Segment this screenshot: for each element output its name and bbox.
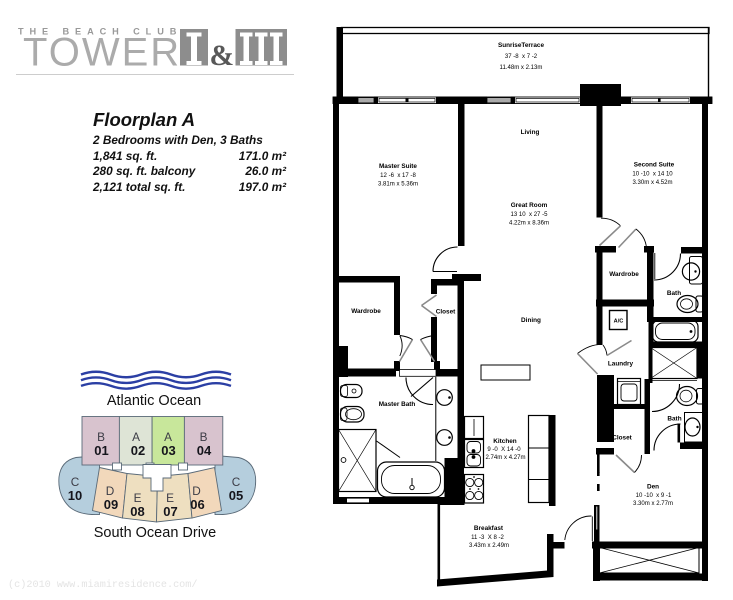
svg-text:Great Room: Great Room (511, 202, 548, 209)
svg-text:SunriseTerrace: SunriseTerrace (498, 42, 545, 49)
svg-text:11.48m x 2.13m: 11.48m x 2.13m (500, 65, 543, 71)
svg-text:Second Suite: Second Suite (634, 162, 675, 169)
svg-text:37 -8 x 7 -2: 37 -8 x 7 -2 (505, 54, 538, 60)
svg-text:Closet: Closet (612, 435, 632, 442)
svg-text:3.30m x 4.52m: 3.30m x 4.52m (633, 180, 673, 186)
svg-text:Kitchen: Kitchen (493, 438, 517, 445)
svg-text:13 10 x 27 -5: 13 10 x 27 -5 (511, 212, 549, 218)
svg-text:Closet: Closet (436, 309, 456, 316)
svg-text:Dining: Dining (521, 317, 541, 324)
svg-text:3.30m x 2.77m: 3.30m x 2.77m (633, 501, 673, 507)
svg-text:2.74m x 4.27m: 2.74m x 4.27m (486, 455, 526, 461)
svg-text:Bath: Bath (667, 290, 681, 297)
svg-text:4.22m x 8.36m: 4.22m x 8.36m (509, 221, 549, 227)
svg-text:10 -10 x 9 -1: 10 -10 x 9 -1 (636, 493, 672, 499)
svg-text:3.81m x 5.36m: 3.81m x 5.36m (378, 182, 418, 188)
svg-text:Bath: Bath (667, 416, 681, 423)
svg-text:Breakfast: Breakfast (474, 525, 504, 532)
svg-text:Laundry: Laundry (608, 361, 634, 368)
svg-text:Wardrobe: Wardrobe (351, 308, 381, 315)
svg-text:Living: Living (521, 129, 540, 136)
svg-text:10 -10 x 14 10: 10 -10 x 14 10 (632, 172, 673, 178)
svg-text:3.43m x 2.49m: 3.43m x 2.49m (469, 543, 509, 549)
svg-text:9 -0 X 14 -0: 9 -0 X 14 -0 (487, 447, 521, 453)
svg-text:A/C: A/C (614, 319, 624, 325)
svg-text:Master Bath: Master Bath (379, 401, 416, 408)
svg-text:Wardrobe: Wardrobe (609, 271, 639, 278)
svg-text:Master Suite: Master Suite (379, 163, 417, 170)
svg-text:Den: Den (647, 484, 659, 491)
svg-text:11 -3 X 8 -2: 11 -3 X 8 -2 (471, 535, 504, 541)
svg-text:12 -6 x 17 -8: 12 -6 x 17 -8 (380, 173, 416, 179)
